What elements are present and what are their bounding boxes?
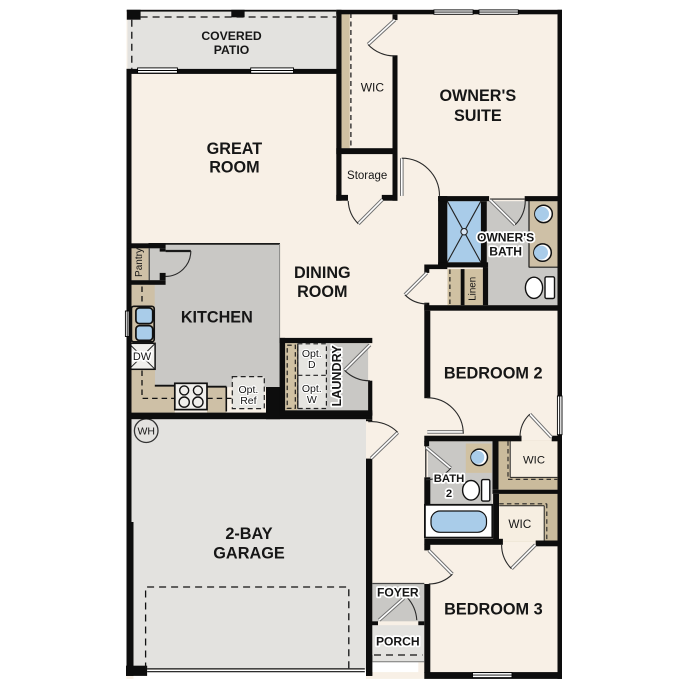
svg-text:LAUNDRY: LAUNDRY [330, 345, 344, 407]
svg-text:WIC: WIC [508, 517, 531, 531]
svg-text:COVERED: COVERED [201, 29, 261, 43]
svg-text:GARAGE: GARAGE [213, 545, 285, 563]
svg-text:OWNER'S: OWNER'S [477, 230, 534, 244]
svg-text:WIC: WIC [523, 454, 545, 466]
svg-text:Opt.: Opt. [238, 384, 258, 396]
svg-text:PATIO: PATIO [214, 43, 249, 57]
svg-text:BEDROOM 3: BEDROOM 3 [444, 601, 543, 619]
svg-text:SUITE: SUITE [454, 107, 502, 125]
svg-text:ROOM: ROOM [297, 283, 347, 301]
svg-text:BATH: BATH [489, 245, 522, 259]
svg-text:WIC: WIC [361, 81, 385, 95]
svg-text:Storage: Storage [347, 170, 387, 182]
svg-text:BATH: BATH [434, 473, 465, 485]
svg-text:PORCH: PORCH [376, 634, 420, 648]
svg-text:OWNER'S: OWNER'S [439, 87, 516, 105]
svg-text:GREAT: GREAT [207, 140, 263, 158]
svg-text:FOYER: FOYER [377, 585, 419, 599]
svg-text:D: D [308, 359, 316, 371]
svg-text:ROOM: ROOM [209, 158, 259, 176]
svg-text:Ref: Ref [240, 395, 256, 407]
svg-text:KITCHEN: KITCHEN [181, 309, 253, 327]
svg-text:DW: DW [133, 351, 152, 363]
svg-text:DINING: DINING [294, 264, 351, 282]
svg-text:2-BAY: 2-BAY [225, 525, 272, 543]
svg-text:Pantry: Pantry [134, 248, 145, 277]
svg-text:W: W [307, 394, 317, 406]
svg-text:BEDROOM 2: BEDROOM 2 [444, 364, 543, 382]
svg-text:WH: WH [137, 425, 155, 437]
svg-text:Linen: Linen [468, 277, 479, 301]
svg-text:2: 2 [446, 488, 452, 500]
